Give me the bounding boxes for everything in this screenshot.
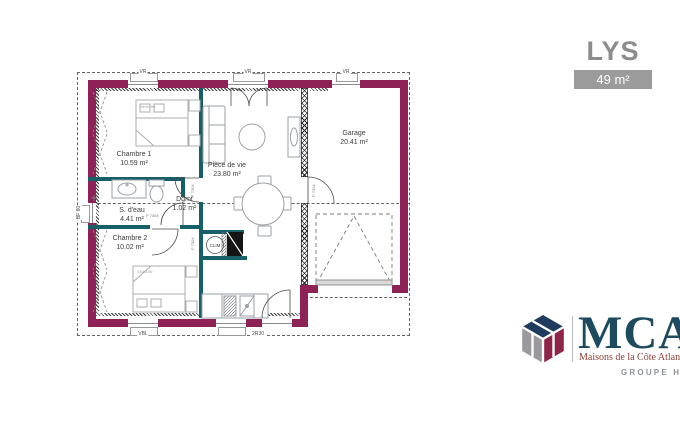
logo-divider <box>572 316 573 362</box>
dim-label-top-2: VR <box>244 70 253 75</box>
garage-door-symbol <box>316 214 392 285</box>
room-name: Pièce de vie <box>192 161 262 170</box>
mca-cube-icon <box>516 312 570 366</box>
room-name: Chambre 1 <box>99 150 169 159</box>
floor-drain-icon <box>91 195 97 201</box>
room-area: 10.59 m² <box>99 159 169 168</box>
dim-label-left: BF 60 <box>77 205 82 220</box>
kitchen-counter-symbol <box>202 294 268 318</box>
vanity-symbol <box>112 180 146 198</box>
bed-size-label-chambre2: 140x190 <box>137 270 152 274</box>
sofa-symbol <box>203 106 225 163</box>
room-area: 1.02 m² <box>162 204 207 213</box>
room-area: 23.80 m² <box>192 170 262 179</box>
clim-label: CLIM <box>210 243 221 248</box>
dining-table-symbol <box>234 176 291 236</box>
door-tag-chambre2: P 7304 <box>191 237 195 250</box>
coffee-table-symbol <box>239 124 265 150</box>
room-label-chambre2: Chambre 2 10.02 m² <box>95 234 165 253</box>
room-name: Garage <box>319 129 389 138</box>
brand-tagline: Maisons de la Côte Atlantique <box>579 352 680 363</box>
door-tag-garage: P 7304 <box>312 184 316 197</box>
room-label-chambre1: Chambre 1 10.59 m² <box>99 150 169 169</box>
dim-label-top-3: VR <box>342 70 351 75</box>
room-label-piece-de-vie: Pièce de vie 23.80 m² <box>192 161 262 180</box>
plan-title: LYS <box>575 36 651 67</box>
room-label-dgmt: Dgmt 1.02 m² <box>162 195 207 214</box>
room-area: 10.02 m² <box>95 243 165 252</box>
room-label-garage: Garage 20.41 m² <box>319 129 389 148</box>
dim-label-top-1: VR <box>139 70 148 75</box>
area-badge: 49 m² <box>574 70 652 89</box>
entrance-door-arc-left <box>231 88 249 106</box>
door-tag-hall: P 7304 <box>191 184 195 197</box>
dim-label-bottom-2: 2R30 <box>251 332 265 337</box>
dim-label-bottom-1: VBL <box>137 332 148 337</box>
room-name: Dgmt <box>162 195 207 204</box>
heater-hatch <box>222 232 226 256</box>
brand-group: GROUPE HEXAOM <box>621 368 680 377</box>
room-name: Chambre 2 <box>95 234 165 243</box>
entrance-door-arc-right <box>249 88 267 106</box>
door-tag-bathroom: P 7304 <box>146 214 159 218</box>
bed-size-label-chambre1: 140x190 <box>140 105 155 109</box>
room-area: 20.41 m² <box>319 138 389 147</box>
water-heater-symbol <box>227 232 243 256</box>
sideboard-symbol <box>288 117 300 157</box>
